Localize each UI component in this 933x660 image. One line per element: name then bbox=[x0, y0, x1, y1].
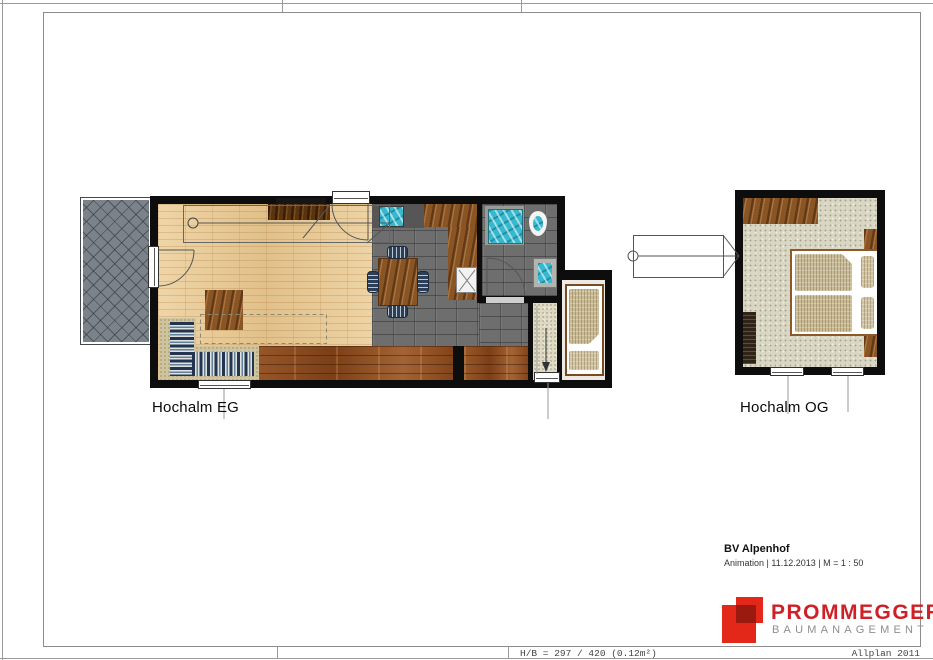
og-duvet-fold bbox=[842, 254, 852, 264]
eg-bed-pillow bbox=[569, 351, 599, 370]
logo-square-overlap bbox=[736, 605, 756, 623]
fold-mark-bottom-1 bbox=[277, 646, 278, 659]
kitchen-counter-top bbox=[424, 204, 477, 227]
og-duvet-bottom bbox=[795, 295, 852, 332]
eg-plank-floor-right bbox=[464, 346, 528, 380]
og-radiator bbox=[743, 312, 756, 364]
outer-top-line bbox=[0, 3, 933, 4]
og-wardrobe bbox=[743, 198, 818, 224]
eg-window-south bbox=[198, 380, 251, 389]
eg-top-door-opening bbox=[332, 191, 370, 204]
logo-subtitle: BAUMANAGEMENT bbox=[772, 624, 928, 636]
footer-divider bbox=[508, 646, 509, 659]
og-plan-label: Hochalm OG bbox=[740, 399, 829, 416]
outer-left-line bbox=[2, 0, 3, 660]
dining-chair-bottom bbox=[387, 305, 408, 318]
drawing-sheet: Hochalm EG Hochalm OG BV Alpenhof Animat… bbox=[0, 0, 933, 660]
bath-sink bbox=[538, 263, 552, 283]
eg-stair-hall-floor bbox=[533, 303, 557, 380]
eg-window-annex bbox=[534, 372, 560, 383]
footer-format-text: H/B = 297 / 420 (0.12m²) bbox=[520, 648, 657, 659]
og-pillow-bottom bbox=[861, 297, 874, 329]
eg-plan-label: Hochalm EG bbox=[152, 399, 239, 416]
title-block-meta: Animation | 11.12.2013 | M = 1 : 50 bbox=[724, 558, 863, 568]
eg-wall-stub bbox=[453, 346, 464, 388]
og-nightstand-bottom bbox=[864, 336, 877, 357]
eg-terrace bbox=[80, 197, 152, 345]
eg-bath-partition-wall bbox=[477, 204, 482, 303]
eg-hall-wall bbox=[528, 303, 533, 380]
og-pillow-top bbox=[861, 256, 874, 288]
logo-wordmark: PROMMEGGER bbox=[771, 601, 933, 625]
shower bbox=[488, 209, 523, 244]
stove bbox=[456, 267, 477, 293]
sofa-seat-vertical bbox=[170, 322, 194, 376]
dining-table bbox=[378, 258, 418, 306]
coffee-table bbox=[205, 290, 243, 330]
fold-mark-top-2 bbox=[521, 0, 522, 12]
og-nightstand-top bbox=[864, 229, 877, 249]
og-window-right bbox=[831, 367, 864, 376]
toilet-bowl bbox=[533, 216, 543, 231]
dining-chair-right bbox=[417, 271, 429, 293]
dining-chair-left bbox=[367, 271, 379, 293]
title-block-project: BV Alpenhof bbox=[724, 543, 790, 555]
og-window-left bbox=[770, 367, 804, 376]
eg-bath-door-opening bbox=[486, 297, 524, 303]
sofa-seat-horizontal bbox=[192, 352, 254, 376]
footer-app-text: Allplan 2011 bbox=[790, 648, 920, 659]
sideboard bbox=[268, 204, 330, 220]
eg-terrace-door-frame bbox=[148, 246, 159, 288]
dining-chair-top bbox=[387, 246, 408, 259]
kitchen-sink bbox=[379, 206, 404, 227]
fold-mark-top-1 bbox=[282, 0, 283, 12]
eg-hall-tile-floor bbox=[479, 303, 528, 346]
eg-plank-floor-left bbox=[252, 346, 453, 380]
eg-bed-duvet-fold bbox=[589, 334, 599, 344]
